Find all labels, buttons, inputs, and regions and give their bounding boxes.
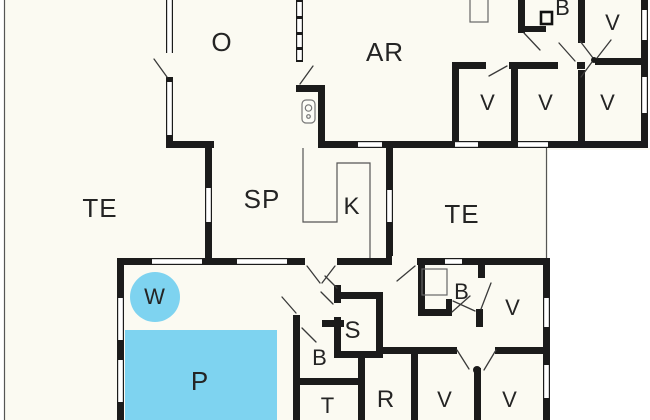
room-label-ar: AR bbox=[366, 39, 404, 65]
shower-fixture bbox=[422, 269, 447, 295]
room-label-v-bot2: V bbox=[502, 389, 518, 411]
room-label-v-row3: V bbox=[600, 92, 616, 114]
room-label-v-topright: V bbox=[605, 12, 621, 34]
room-label-r: R bbox=[377, 388, 395, 412]
room-label-b-mid: B bbox=[454, 281, 470, 303]
room-label-te-left: TE bbox=[82, 195, 117, 221]
room-label-te-right: TE bbox=[444, 201, 479, 227]
room-label-p: P bbox=[191, 368, 209, 394]
room-label-w: W bbox=[144, 286, 166, 308]
room-label-v-mid: V bbox=[505, 297, 521, 319]
room-label-sp: SP bbox=[244, 186, 281, 212]
room-label-s: S bbox=[344, 319, 361, 343]
stove-fixture bbox=[302, 100, 315, 123]
room-label-b-low: B bbox=[312, 347, 328, 369]
room-label-o: O bbox=[211, 29, 232, 55]
room-label-v-row2: V bbox=[538, 92, 554, 114]
room-label-v-row1: V bbox=[480, 92, 496, 114]
toilet-fixture bbox=[541, 12, 552, 24]
room-label-t: T bbox=[321, 395, 335, 417]
room-label-v-bot1: V bbox=[437, 389, 453, 411]
wardrobe-fixture bbox=[470, 0, 488, 22]
room-label-k: K bbox=[343, 195, 360, 219]
floor-plan: O AR B V V V V TE SP K TE W P B V S B T … bbox=[0, 0, 650, 420]
room-label-b-top: B bbox=[555, 0, 571, 19]
